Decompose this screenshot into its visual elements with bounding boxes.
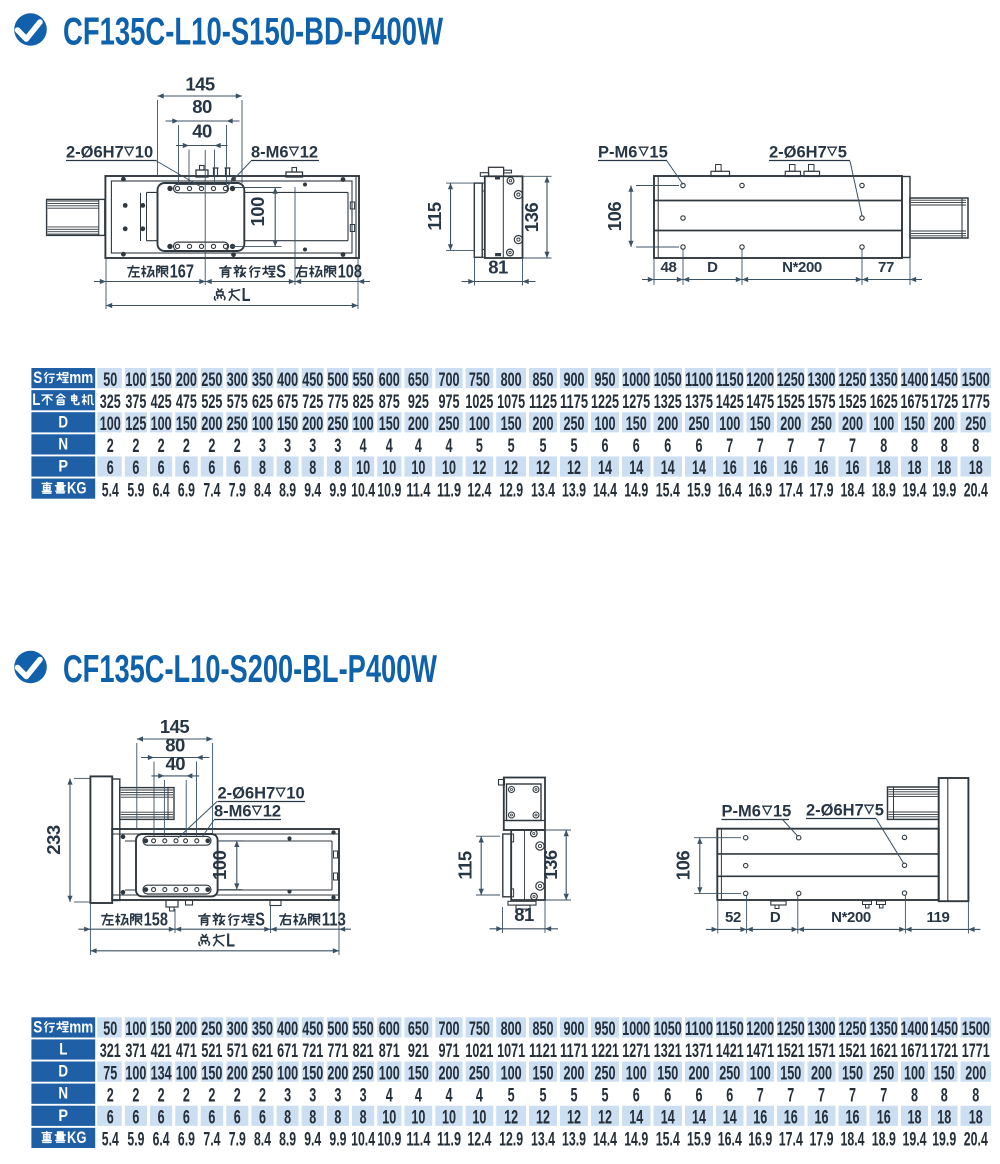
svg-text:136: 136 bbox=[521, 203, 542, 233]
svg-text:115: 115 bbox=[424, 202, 445, 231]
svg-text:12: 12 bbox=[504, 1108, 518, 1129]
svg-text:6: 6 bbox=[633, 436, 640, 457]
svg-text:3: 3 bbox=[309, 436, 316, 457]
svg-text:3: 3 bbox=[284, 1085, 291, 1106]
svg-text:300: 300 bbox=[227, 370, 248, 391]
svg-text:1100: 1100 bbox=[685, 1019, 713, 1040]
svg-text:D: D bbox=[58, 412, 68, 431]
svg-text:5: 5 bbox=[602, 1085, 609, 1106]
svg-text:16: 16 bbox=[846, 1108, 860, 1129]
svg-text:81: 81 bbox=[514, 904, 534, 925]
svg-text:3: 3 bbox=[259, 436, 266, 457]
svg-text:1371: 1371 bbox=[685, 1041, 713, 1062]
svg-text:2: 2 bbox=[107, 436, 114, 457]
svg-text:15.9: 15.9 bbox=[687, 480, 711, 501]
svg-text:6: 6 bbox=[208, 1108, 215, 1129]
svg-text:4: 4 bbox=[476, 1085, 483, 1106]
svg-text:1200: 1200 bbox=[746, 1019, 774, 1040]
svg-text:321: 321 bbox=[100, 1041, 121, 1062]
svg-text:1250: 1250 bbox=[839, 370, 867, 391]
svg-text:625: 625 bbox=[252, 392, 273, 413]
svg-text:250: 250 bbox=[201, 370, 222, 391]
svg-text:10: 10 bbox=[442, 1108, 456, 1129]
svg-text:6.4: 6.4 bbox=[153, 480, 170, 501]
svg-text:950: 950 bbox=[595, 370, 616, 391]
svg-text:18: 18 bbox=[969, 458, 983, 479]
svg-text:871: 871 bbox=[379, 1041, 400, 1062]
svg-text:6: 6 bbox=[234, 1108, 241, 1129]
svg-text:17.9: 17.9 bbox=[810, 1130, 834, 1151]
svg-text:18: 18 bbox=[908, 1108, 922, 1129]
svg-text:2: 2 bbox=[183, 1085, 190, 1106]
svg-text:250: 250 bbox=[469, 1063, 490, 1084]
svg-text:7: 7 bbox=[726, 436, 733, 457]
svg-text:1250: 1250 bbox=[777, 370, 805, 391]
svg-text:2-Ø6H7: 2-Ø6H7 bbox=[769, 144, 827, 162]
svg-text:921: 921 bbox=[408, 1041, 429, 1062]
svg-text:250: 250 bbox=[564, 414, 585, 435]
svg-text:18: 18 bbox=[969, 1108, 983, 1129]
svg-text:10: 10 bbox=[382, 458, 396, 479]
svg-text:12.9: 12.9 bbox=[499, 480, 523, 501]
svg-text:200: 200 bbox=[201, 414, 222, 435]
svg-text:8: 8 bbox=[284, 458, 291, 479]
svg-text:650: 650 bbox=[408, 1019, 429, 1040]
svg-text:10.4: 10.4 bbox=[351, 480, 375, 501]
svg-text:100: 100 bbox=[353, 414, 374, 435]
svg-text:15: 15 bbox=[649, 144, 667, 162]
svg-text:8: 8 bbox=[941, 1085, 948, 1106]
svg-text:150: 150 bbox=[533, 1063, 554, 1084]
svg-text:525: 525 bbox=[201, 392, 222, 413]
svg-text:18.9: 18.9 bbox=[872, 1130, 896, 1151]
svg-text:6: 6 bbox=[208, 458, 215, 479]
svg-text:150: 150 bbox=[302, 1063, 323, 1084]
svg-text:9.9: 9.9 bbox=[329, 1130, 346, 1151]
svg-text:100: 100 bbox=[125, 370, 146, 391]
svg-text:2: 2 bbox=[183, 436, 190, 457]
svg-text:40: 40 bbox=[192, 121, 212, 142]
svg-text:106: 106 bbox=[673, 851, 694, 881]
svg-text:106: 106 bbox=[604, 202, 625, 232]
svg-text:2: 2 bbox=[132, 436, 139, 457]
svg-text:136: 136 bbox=[540, 850, 561, 880]
svg-text:671: 671 bbox=[277, 1041, 298, 1062]
svg-text:2: 2 bbox=[234, 1085, 241, 1106]
svg-text:115: 115 bbox=[455, 851, 476, 880]
svg-text:800: 800 bbox=[501, 1019, 522, 1040]
svg-text:1771: 1771 bbox=[962, 1041, 990, 1062]
svg-text:421: 421 bbox=[151, 1041, 172, 1062]
svg-text:17.9: 17.9 bbox=[810, 480, 834, 501]
svg-text:16.9: 16.9 bbox=[748, 480, 772, 501]
svg-text:12: 12 bbox=[536, 458, 550, 479]
svg-text:2: 2 bbox=[234, 436, 241, 457]
svg-text:12.4: 12.4 bbox=[467, 1130, 491, 1151]
svg-text:10: 10 bbox=[356, 458, 370, 479]
svg-text:8: 8 bbox=[284, 1108, 291, 1129]
svg-text:250: 250 bbox=[227, 414, 248, 435]
svg-text:1050: 1050 bbox=[654, 1019, 682, 1040]
svg-text:150: 150 bbox=[408, 1063, 429, 1084]
svg-text:150: 150 bbox=[780, 1063, 801, 1084]
svg-text:3: 3 bbox=[309, 1085, 316, 1106]
svg-text:1125: 1125 bbox=[529, 392, 557, 413]
svg-text:200: 200 bbox=[533, 414, 554, 435]
svg-text:1100: 1100 bbox=[685, 370, 713, 391]
svg-text:15.9: 15.9 bbox=[687, 1130, 711, 1151]
svg-text:16.4: 16.4 bbox=[718, 480, 742, 501]
svg-text:50: 50 bbox=[103, 1019, 117, 1040]
svg-text:16: 16 bbox=[815, 458, 829, 479]
svg-text:4: 4 bbox=[386, 436, 393, 457]
svg-text:D: D bbox=[707, 259, 718, 276]
svg-text:8: 8 bbox=[309, 458, 316, 479]
svg-text:250: 250 bbox=[201, 1019, 222, 1040]
svg-text:200: 200 bbox=[408, 414, 429, 435]
svg-text:1021: 1021 bbox=[465, 1041, 493, 1062]
svg-text:12: 12 bbox=[567, 458, 581, 479]
svg-text:3: 3 bbox=[360, 1085, 367, 1106]
svg-text:100: 100 bbox=[252, 414, 273, 435]
svg-text:100: 100 bbox=[247, 197, 268, 227]
svg-text:L: L bbox=[226, 930, 235, 951]
svg-text:325: 325 bbox=[100, 392, 121, 413]
svg-text:N*200: N*200 bbox=[831, 909, 871, 926]
svg-text:250: 250 bbox=[811, 414, 832, 435]
svg-text:721: 721 bbox=[302, 1041, 323, 1062]
svg-text:14: 14 bbox=[692, 1108, 706, 1129]
svg-text:200: 200 bbox=[811, 1063, 832, 1084]
svg-text:1121: 1121 bbox=[529, 1041, 557, 1062]
svg-text:4: 4 bbox=[415, 436, 422, 457]
svg-text:650: 650 bbox=[408, 370, 429, 391]
svg-text:850: 850 bbox=[533, 1019, 554, 1040]
svg-text:48: 48 bbox=[661, 259, 677, 276]
svg-text:mm: mm bbox=[69, 368, 93, 387]
svg-text:150: 150 bbox=[277, 414, 298, 435]
svg-text:1171: 1171 bbox=[560, 1041, 588, 1062]
svg-text:2: 2 bbox=[132, 1085, 139, 1106]
svg-text:6: 6 bbox=[633, 1085, 640, 1106]
svg-text:16: 16 bbox=[753, 458, 767, 479]
svg-text:9.9: 9.9 bbox=[329, 480, 346, 501]
svg-text:10: 10 bbox=[411, 1108, 425, 1129]
svg-text:150: 150 bbox=[934, 1063, 955, 1084]
svg-text:19.4: 19.4 bbox=[903, 480, 927, 501]
svg-text:100: 100 bbox=[595, 414, 616, 435]
svg-text:200: 200 bbox=[327, 1063, 348, 1084]
svg-text:1275: 1275 bbox=[622, 392, 650, 413]
svg-text:771: 771 bbox=[327, 1041, 348, 1062]
svg-text:1150: 1150 bbox=[716, 1019, 744, 1040]
svg-text:150: 150 bbox=[379, 414, 400, 435]
svg-text:5: 5 bbox=[476, 436, 483, 457]
svg-text:15.4: 15.4 bbox=[656, 480, 680, 501]
svg-text:150: 150 bbox=[151, 1019, 172, 1040]
svg-text:1775: 1775 bbox=[962, 392, 990, 413]
svg-text:8.4: 8.4 bbox=[254, 1130, 271, 1151]
svg-text:1675: 1675 bbox=[901, 392, 929, 413]
svg-text:S: S bbox=[276, 261, 286, 282]
svg-text:7: 7 bbox=[757, 1085, 764, 1106]
svg-text:8: 8 bbox=[334, 458, 341, 479]
svg-text:14: 14 bbox=[723, 1108, 737, 1129]
svg-text:250: 250 bbox=[353, 1063, 374, 1084]
svg-text:475: 475 bbox=[176, 392, 197, 413]
svg-text:16: 16 bbox=[723, 458, 737, 479]
svg-text:10.4: 10.4 bbox=[351, 1130, 375, 1151]
svg-text:575: 575 bbox=[227, 392, 248, 413]
svg-text:4: 4 bbox=[386, 1085, 393, 1106]
svg-text:300: 300 bbox=[227, 1019, 248, 1040]
svg-text:200: 200 bbox=[934, 414, 955, 435]
svg-text:CF135C-L10-S150-BD-P400W: CF135C-L10-S150-BD-P400W bbox=[63, 11, 443, 54]
svg-text:950: 950 bbox=[595, 1019, 616, 1040]
svg-text:1475: 1475 bbox=[746, 392, 774, 413]
svg-text:900: 900 bbox=[564, 1019, 585, 1040]
svg-text:200: 200 bbox=[302, 414, 323, 435]
svg-text:1350: 1350 bbox=[870, 1019, 898, 1040]
svg-text:20.4: 20.4 bbox=[964, 1130, 988, 1151]
svg-text:6: 6 bbox=[107, 1108, 114, 1129]
svg-text:200: 200 bbox=[689, 1063, 710, 1084]
svg-text:1471: 1471 bbox=[746, 1041, 774, 1062]
svg-text:19.9: 19.9 bbox=[932, 1130, 956, 1151]
svg-text:6.4: 6.4 bbox=[153, 1130, 170, 1151]
svg-text:10: 10 bbox=[442, 458, 456, 479]
svg-text:900: 900 bbox=[564, 370, 585, 391]
svg-text:700: 700 bbox=[439, 1019, 460, 1040]
svg-text:10.9: 10.9 bbox=[377, 1130, 401, 1151]
svg-text:200: 200 bbox=[176, 1019, 197, 1040]
svg-text:450: 450 bbox=[302, 370, 323, 391]
svg-text:350: 350 bbox=[252, 370, 273, 391]
svg-text:2: 2 bbox=[107, 1085, 114, 1106]
svg-text:10.9: 10.9 bbox=[377, 480, 401, 501]
svg-text:8: 8 bbox=[941, 436, 948, 457]
svg-text:14.9: 14.9 bbox=[624, 1130, 648, 1151]
svg-text:15.4: 15.4 bbox=[656, 1130, 680, 1151]
svg-text:20.4: 20.4 bbox=[964, 480, 988, 501]
svg-text:6: 6 bbox=[602, 436, 609, 457]
svg-text:100: 100 bbox=[100, 414, 121, 435]
svg-text:550: 550 bbox=[353, 1019, 374, 1040]
svg-text:400: 400 bbox=[277, 370, 298, 391]
svg-text:8-M6: 8-M6 bbox=[214, 803, 252, 821]
svg-text:12: 12 bbox=[472, 458, 486, 479]
svg-text:17.4: 17.4 bbox=[779, 1130, 803, 1151]
svg-text:5: 5 bbox=[540, 436, 547, 457]
svg-text:1671: 1671 bbox=[901, 1041, 929, 1062]
svg-text:L: L bbox=[59, 1040, 67, 1059]
svg-text:12.4: 12.4 bbox=[467, 480, 491, 501]
svg-text:14.4: 14.4 bbox=[593, 1130, 617, 1151]
svg-text:775: 775 bbox=[327, 392, 348, 413]
svg-text:3: 3 bbox=[334, 1085, 341, 1106]
svg-text:13.4: 13.4 bbox=[531, 1130, 555, 1151]
svg-text:4: 4 bbox=[446, 436, 453, 457]
svg-text:7: 7 bbox=[880, 1085, 887, 1106]
svg-text:750: 750 bbox=[469, 1019, 490, 1040]
svg-text:4: 4 bbox=[360, 436, 367, 457]
svg-text:500: 500 bbox=[327, 370, 348, 391]
svg-text:5: 5 bbox=[875, 802, 884, 820]
svg-text:11.9: 11.9 bbox=[437, 1130, 461, 1151]
svg-text:1375: 1375 bbox=[685, 392, 713, 413]
svg-text:6: 6 bbox=[696, 1085, 703, 1106]
svg-text:1300: 1300 bbox=[808, 370, 836, 391]
svg-text:1225: 1225 bbox=[591, 392, 619, 413]
svg-text:18: 18 bbox=[937, 458, 951, 479]
svg-text:1075: 1075 bbox=[497, 392, 525, 413]
svg-text:14: 14 bbox=[598, 458, 612, 479]
svg-text:18.4: 18.4 bbox=[841, 1130, 865, 1151]
svg-text:mm: mm bbox=[69, 1017, 93, 1036]
svg-text:14.9: 14.9 bbox=[624, 480, 648, 501]
svg-text:200: 200 bbox=[439, 1063, 460, 1084]
svg-text:100: 100 bbox=[626, 1063, 647, 1084]
svg-text:10: 10 bbox=[472, 1108, 486, 1129]
svg-text:875: 875 bbox=[379, 392, 400, 413]
svg-text:400: 400 bbox=[277, 1019, 298, 1040]
svg-text:16.4: 16.4 bbox=[718, 1130, 742, 1151]
svg-text:200: 200 bbox=[780, 414, 801, 435]
svg-text:P-M6: P-M6 bbox=[722, 803, 761, 821]
svg-text:1150: 1150 bbox=[716, 370, 744, 391]
svg-text:9.4: 9.4 bbox=[304, 1130, 321, 1151]
svg-text:250: 250 bbox=[873, 1063, 894, 1084]
svg-text:250: 250 bbox=[719, 1063, 740, 1084]
svg-text:10: 10 bbox=[286, 785, 304, 803]
svg-text:8.9: 8.9 bbox=[279, 1130, 296, 1151]
svg-text:12: 12 bbox=[536, 1108, 550, 1129]
svg-text:1521: 1521 bbox=[839, 1041, 867, 1062]
svg-text:200: 200 bbox=[176, 370, 197, 391]
svg-text:167: 167 bbox=[170, 261, 194, 282]
svg-text:1071: 1071 bbox=[497, 1041, 525, 1062]
svg-text:1575: 1575 bbox=[808, 392, 836, 413]
svg-text:1725: 1725 bbox=[930, 392, 958, 413]
svg-text:100: 100 bbox=[501, 1063, 522, 1084]
svg-text:18: 18 bbox=[877, 458, 891, 479]
svg-text:571: 571 bbox=[227, 1041, 248, 1062]
svg-text:600: 600 bbox=[379, 370, 400, 391]
svg-text:200: 200 bbox=[564, 1063, 585, 1084]
svg-text:18: 18 bbox=[908, 458, 922, 479]
svg-text:100: 100 bbox=[125, 1019, 146, 1040]
svg-text:1421: 1421 bbox=[716, 1041, 744, 1062]
svg-text:7: 7 bbox=[818, 436, 825, 457]
svg-text:19.9: 19.9 bbox=[932, 480, 956, 501]
svg-text:925: 925 bbox=[408, 392, 429, 413]
svg-text:150: 150 bbox=[201, 1063, 222, 1084]
svg-text:S: S bbox=[33, 368, 42, 387]
svg-text:5.9: 5.9 bbox=[127, 1130, 144, 1151]
svg-text:18: 18 bbox=[937, 1108, 951, 1129]
svg-text:77: 77 bbox=[878, 259, 894, 276]
svg-text:13.4: 13.4 bbox=[531, 480, 555, 501]
svg-text:16: 16 bbox=[784, 1108, 798, 1129]
svg-text:3: 3 bbox=[284, 436, 291, 457]
svg-text:134: 134 bbox=[151, 1063, 172, 1084]
svg-text:250: 250 bbox=[965, 414, 986, 435]
svg-text:7: 7 bbox=[787, 436, 794, 457]
svg-text:2: 2 bbox=[158, 436, 165, 457]
svg-text:1325: 1325 bbox=[654, 392, 682, 413]
svg-text:150: 150 bbox=[657, 1063, 678, 1084]
svg-text:1525: 1525 bbox=[777, 392, 805, 413]
svg-text:1300: 1300 bbox=[808, 1019, 836, 1040]
svg-text:6: 6 bbox=[183, 1108, 190, 1129]
svg-text:8: 8 bbox=[911, 1085, 918, 1106]
svg-text:1625: 1625 bbox=[870, 392, 898, 413]
svg-text:11.4: 11.4 bbox=[406, 1130, 430, 1151]
svg-text:100: 100 bbox=[125, 1063, 146, 1084]
svg-text:7.4: 7.4 bbox=[203, 1130, 220, 1151]
svg-text:150: 150 bbox=[626, 414, 647, 435]
svg-text:11.4: 11.4 bbox=[406, 480, 430, 501]
svg-text:D: D bbox=[770, 909, 781, 926]
svg-text:KG: KG bbox=[67, 1128, 87, 1147]
svg-text:L: L bbox=[32, 390, 40, 409]
svg-text:675: 675 bbox=[277, 392, 298, 413]
svg-text:1175: 1175 bbox=[560, 392, 588, 413]
svg-text:14: 14 bbox=[629, 458, 643, 479]
svg-text:200: 200 bbox=[657, 414, 678, 435]
svg-text:7.9: 7.9 bbox=[229, 1130, 246, 1151]
svg-text:14: 14 bbox=[661, 458, 675, 479]
svg-text:5: 5 bbox=[508, 436, 515, 457]
svg-text:13.9: 13.9 bbox=[562, 1130, 586, 1151]
svg-text:108: 108 bbox=[338, 261, 362, 282]
svg-text:P: P bbox=[58, 457, 68, 476]
svg-text:7.4: 7.4 bbox=[203, 480, 220, 501]
svg-text:700: 700 bbox=[439, 370, 460, 391]
svg-text:975: 975 bbox=[439, 392, 460, 413]
svg-text:7: 7 bbox=[757, 436, 764, 457]
svg-text:16: 16 bbox=[753, 1108, 767, 1129]
svg-text:1221: 1221 bbox=[591, 1041, 619, 1062]
svg-text:14: 14 bbox=[629, 1108, 643, 1129]
svg-text:75: 75 bbox=[103, 1063, 117, 1084]
svg-text:1621: 1621 bbox=[870, 1041, 898, 1062]
svg-text:7.9: 7.9 bbox=[229, 480, 246, 501]
svg-text:9.4: 9.4 bbox=[304, 480, 321, 501]
svg-text:10: 10 bbox=[411, 458, 425, 479]
svg-text:6: 6 bbox=[107, 458, 114, 479]
svg-text:100: 100 bbox=[469, 414, 490, 435]
svg-text:2: 2 bbox=[259, 1085, 266, 1106]
svg-text:2-Ø6H7: 2-Ø6H7 bbox=[806, 802, 864, 820]
svg-text:18.9: 18.9 bbox=[872, 480, 896, 501]
svg-text:6: 6 bbox=[234, 458, 241, 479]
svg-text:200: 200 bbox=[965, 1063, 986, 1084]
svg-text:825: 825 bbox=[353, 392, 374, 413]
svg-text:375: 375 bbox=[125, 392, 146, 413]
svg-text:150: 150 bbox=[750, 414, 771, 435]
svg-text:5: 5 bbox=[838, 144, 847, 162]
svg-text:19.4: 19.4 bbox=[903, 1130, 927, 1151]
svg-text:8-M6: 8-M6 bbox=[251, 144, 289, 162]
svg-text:6: 6 bbox=[664, 1085, 671, 1106]
svg-text:6: 6 bbox=[726, 1085, 733, 1106]
svg-text:6.9: 6.9 bbox=[178, 480, 195, 501]
svg-text:2-Ø6H7: 2-Ø6H7 bbox=[66, 144, 124, 162]
svg-text:1271: 1271 bbox=[622, 1041, 650, 1062]
svg-text:1425: 1425 bbox=[716, 392, 744, 413]
svg-text:5.4: 5.4 bbox=[102, 1130, 119, 1151]
